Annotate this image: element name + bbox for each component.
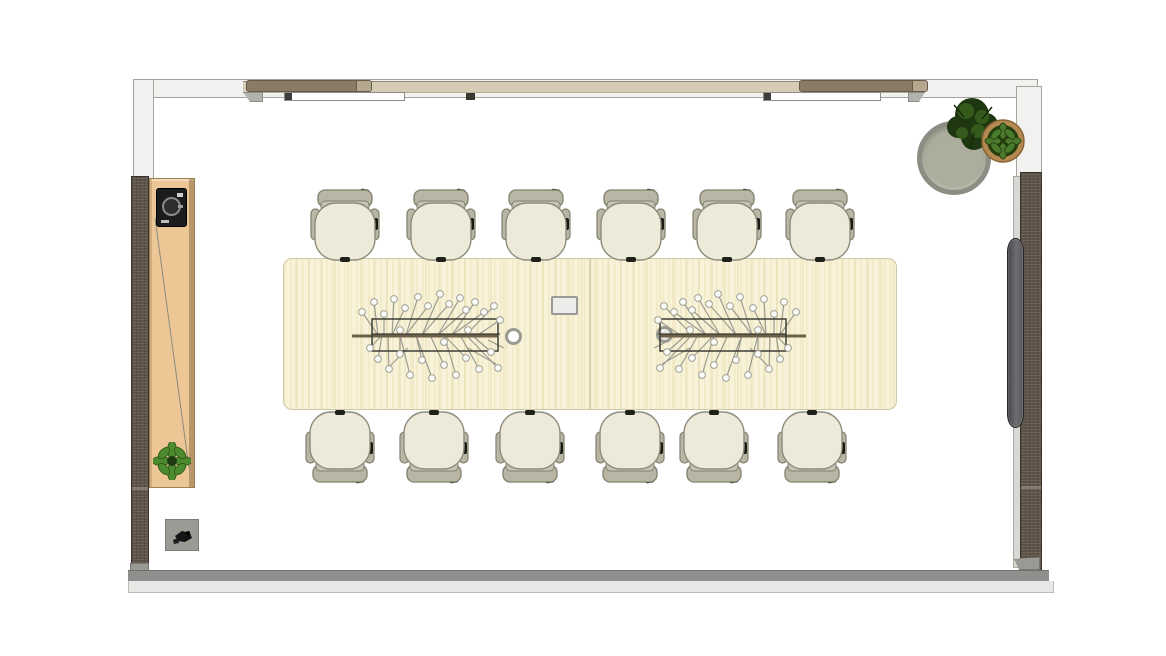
corner-wall-top-left — [133, 79, 154, 179]
right-panel-seam — [1021, 486, 1041, 489]
bottom-wall — [128, 570, 1049, 581]
sliding-door-left — [284, 92, 405, 101]
potted-plant-icon — [980, 118, 1026, 164]
task-chair-top-4 — [596, 188, 666, 262]
task-chair-top-2 — [406, 188, 476, 262]
audio-device-detail — [177, 193, 183, 197]
table-control-panel — [551, 296, 578, 315]
bottom-wall-base — [128, 581, 1054, 593]
left-panel-seam — [132, 487, 148, 490]
sliding-door-track-left — [246, 80, 372, 92]
sliding-door-right — [763, 92, 881, 101]
left-wall-panel — [131, 176, 149, 573]
audio-device — [156, 188, 187, 227]
sliding-door-track-right — [799, 80, 928, 92]
floor-box-glyph — [166, 520, 200, 552]
tv-display — [1007, 238, 1024, 428]
task-chair-bottom-1 — [305, 410, 375, 484]
task-chair-bottom-4 — [595, 410, 665, 484]
audio-device-detail — [178, 205, 183, 208]
task-chair-bottom-6 — [777, 410, 847, 484]
task-chair-top-3 — [501, 188, 571, 262]
floor-plan — [0, 0, 1166, 656]
task-chair-bottom-5 — [679, 410, 749, 484]
credenza-plant-icon — [153, 442, 191, 480]
task-chair-top-6 — [785, 188, 855, 262]
task-chair-bottom-3 — [495, 410, 565, 484]
door-stop — [466, 93, 475, 100]
right-panel-cap — [1014, 557, 1040, 570]
task-chair-top-1 — [310, 188, 380, 262]
task-chair-bottom-2 — [399, 410, 469, 484]
task-chair-top-5 — [692, 188, 762, 262]
floor-power-box — [165, 519, 199, 551]
audio-device-detail — [161, 220, 169, 223]
cable-grommet-left — [505, 328, 522, 345]
table-seam — [589, 259, 591, 409]
cable-grommet-right — [656, 326, 673, 343]
